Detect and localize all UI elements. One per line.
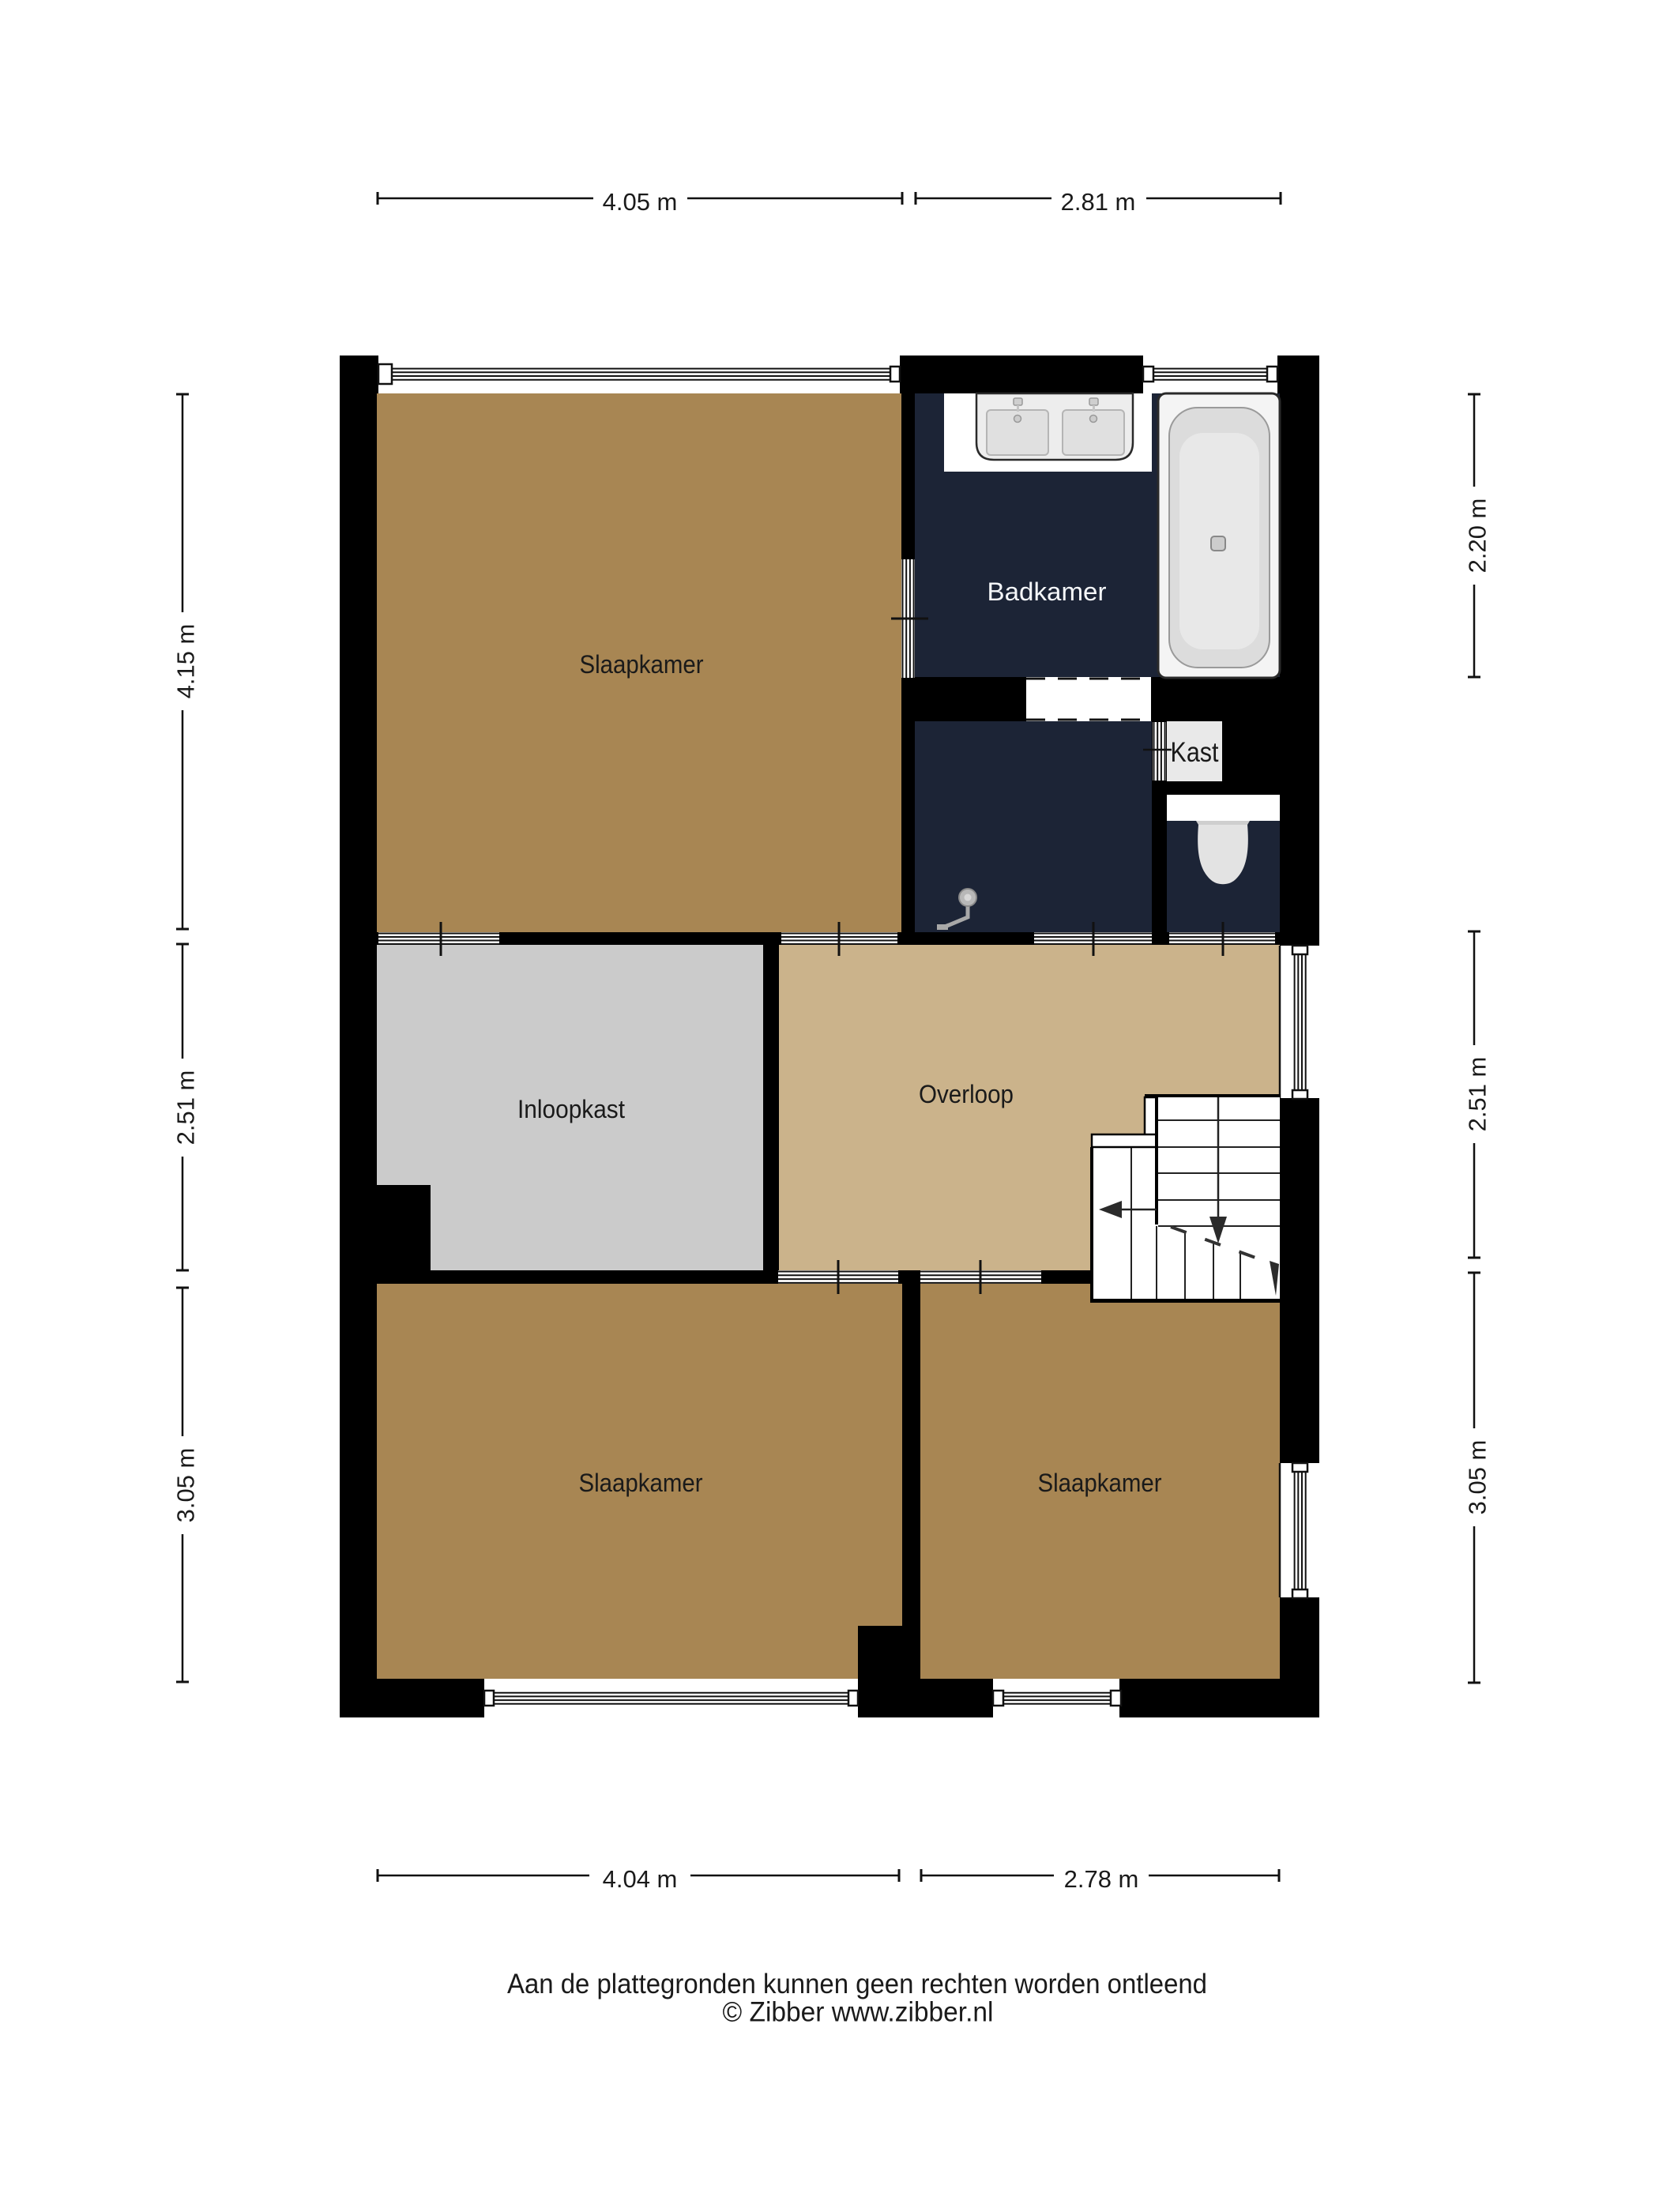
svg-text:Slaapkamer: Slaapkamer (579, 1469, 703, 1497)
svg-text:2.20 m: 2.20 m (1464, 498, 1492, 574)
svg-text:3.05 m: 3.05 m (1464, 1440, 1492, 1515)
svg-text:4.05 m: 4.05 m (603, 188, 678, 216)
svg-text:© Zibber www.zibber.nl: © Zibber www.zibber.nl (723, 1997, 994, 2028)
svg-text:Inloopkast: Inloopkast (517, 1095, 625, 1123)
svg-text:4.04 m: 4.04 m (603, 1865, 678, 1893)
svg-text:Badkamer: Badkamer (987, 577, 1107, 606)
svg-text:Overloop: Overloop (919, 1080, 1014, 1108)
svg-text:Kast: Kast (1171, 737, 1219, 768)
svg-text:2.81 m: 2.81 m (1061, 188, 1136, 216)
svg-text:2.78 m: 2.78 m (1064, 1865, 1139, 1893)
svg-text:Slaapkamer: Slaapkamer (580, 650, 704, 679)
svg-text:2.51 m: 2.51 m (172, 1070, 200, 1145)
svg-text:3.05 m: 3.05 m (172, 1448, 200, 1523)
svg-text:4.15 m: 4.15 m (172, 624, 200, 699)
svg-text:2.51 m: 2.51 m (1464, 1057, 1492, 1132)
svg-text:Slaapkamer: Slaapkamer (1038, 1469, 1162, 1497)
svg-text:Aan de plattegronden kunnen ge: Aan de plattegronden kunnen geen rechten… (507, 1969, 1207, 1999)
